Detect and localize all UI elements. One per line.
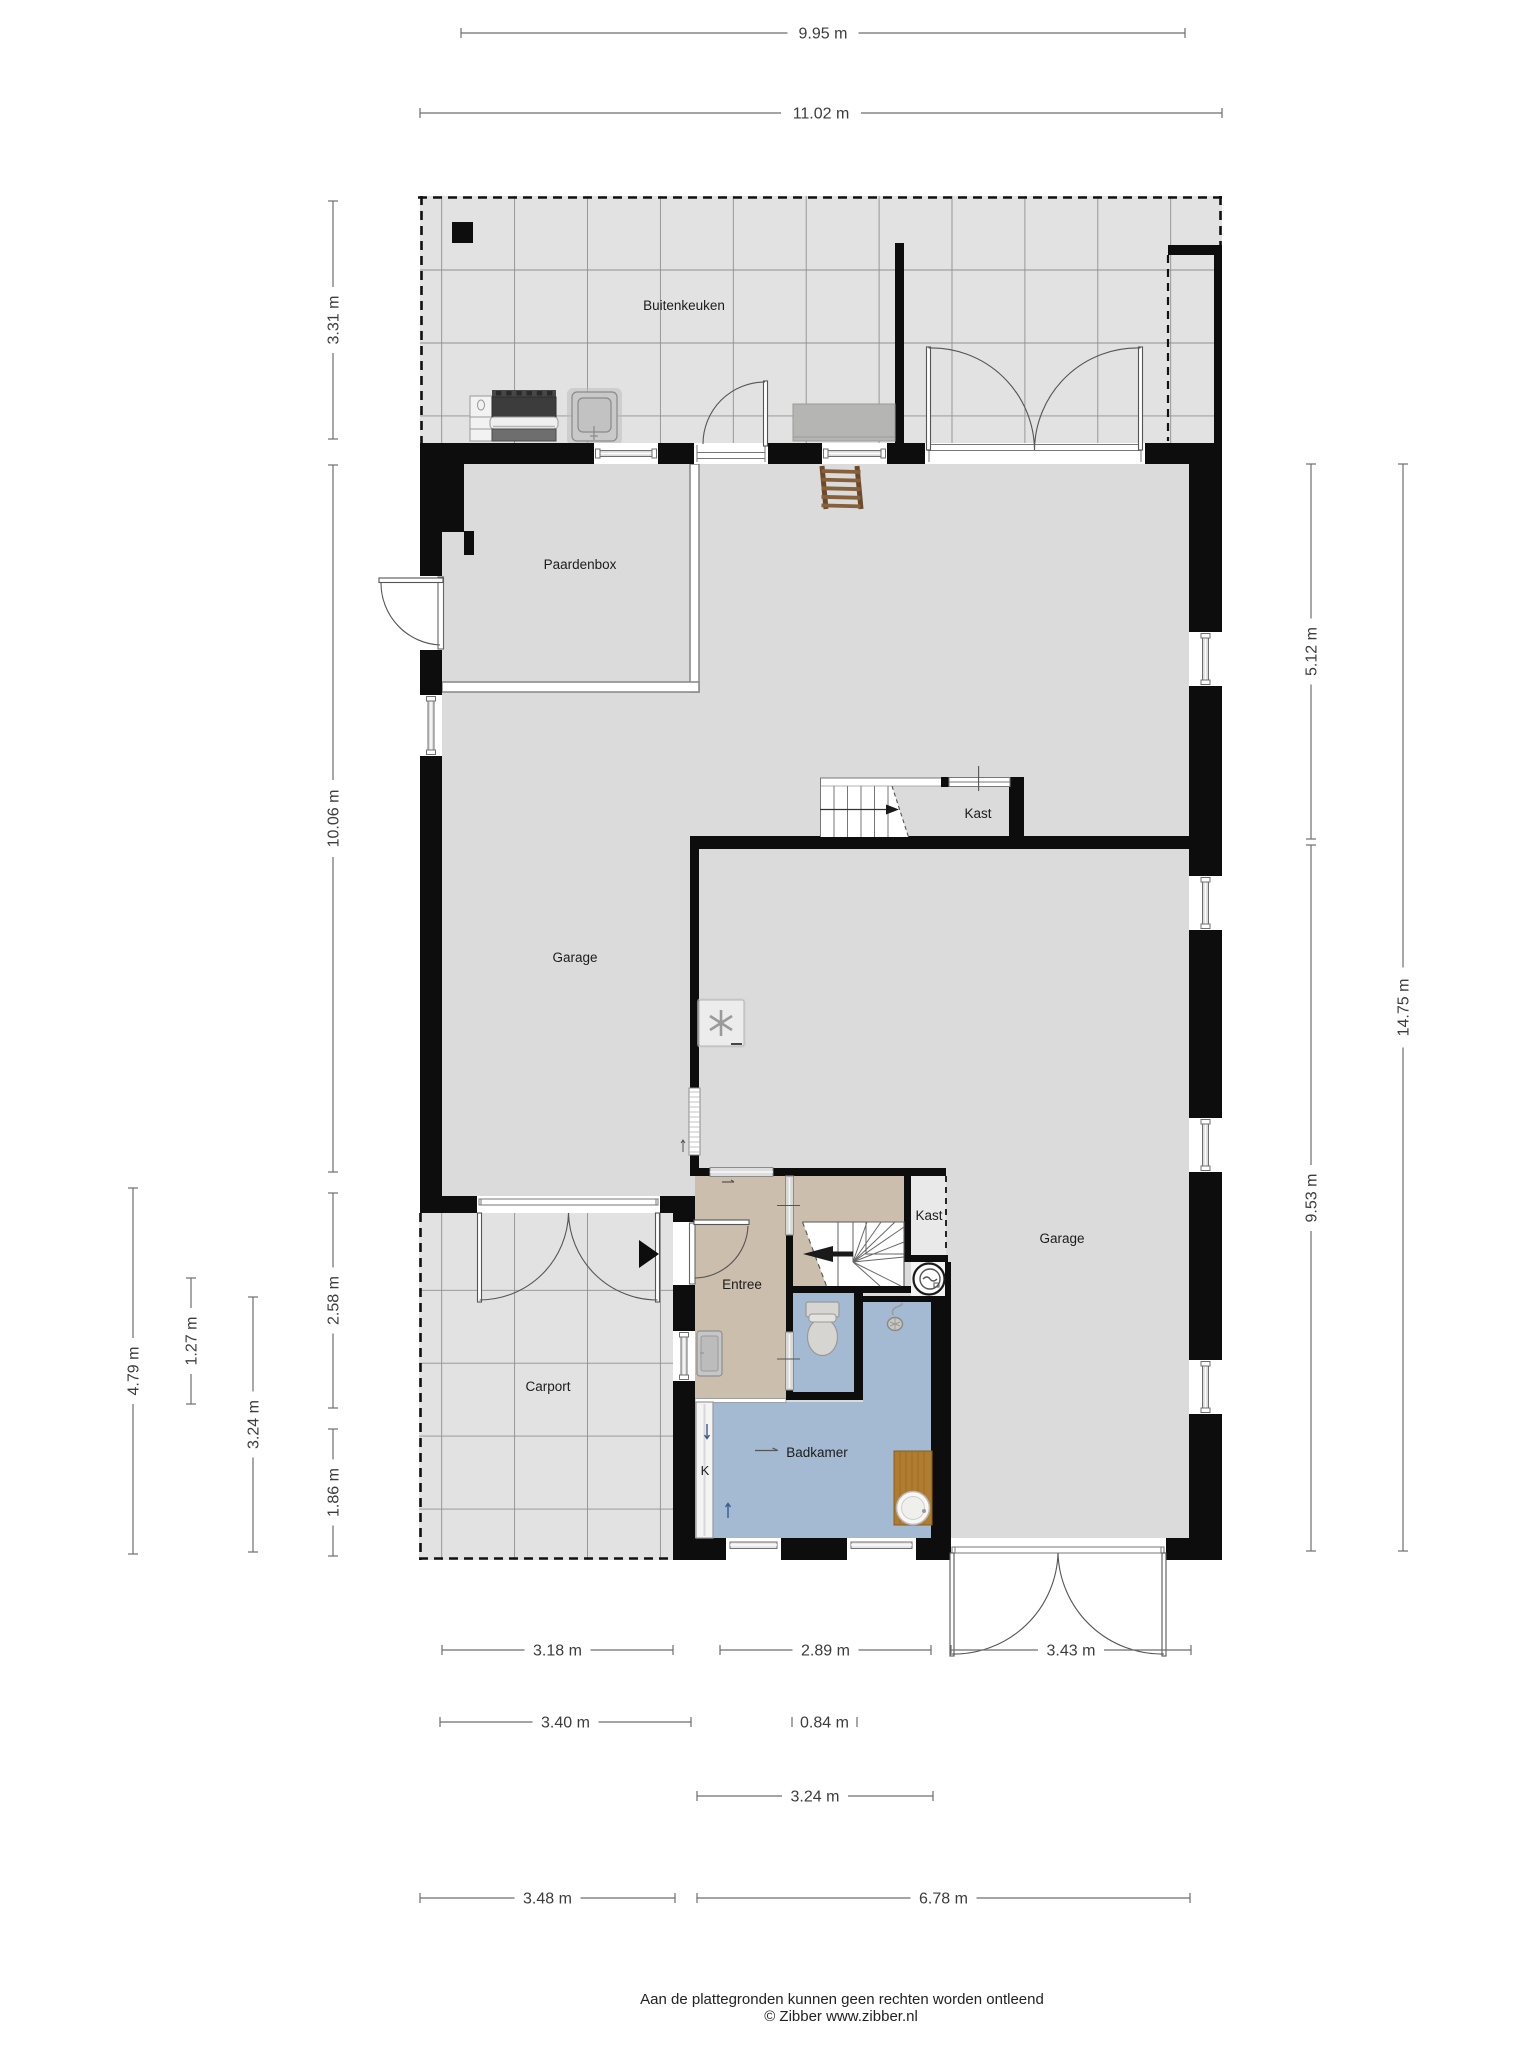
svg-text:5.12 m: 5.12 m [1304,627,1321,676]
svg-text:11.02 m: 11.02 m [793,106,850,123]
svg-text:3.43 m: 3.43 m [1047,1643,1096,1660]
svg-text:Garage: Garage [1039,1231,1084,1246]
svg-text:1.27 m: 1.27 m [184,1317,201,1366]
svg-text:K: K [701,1463,710,1478]
svg-text:Paardenbox: Paardenbox [544,557,617,572]
svg-text:Carport: Carport [525,1379,570,1394]
svg-text:2.89 m: 2.89 m [801,1643,850,1660]
svg-text:6.78 m: 6.78 m [919,1891,968,1908]
svg-text:Kast: Kast [915,1208,942,1223]
svg-text:3.48 m: 3.48 m [523,1891,572,1908]
svg-text:Entree: Entree [722,1277,762,1292]
svg-text:3.24 m: 3.24 m [246,1400,263,1449]
svg-text:Kast: Kast [964,806,991,821]
svg-text:Garage: Garage [552,950,597,965]
svg-text:Buitenkeuken: Buitenkeuken [643,298,725,313]
svg-text:© Zibber www.zibber.nl: © Zibber www.zibber.nl [764,2008,918,2025]
svg-text:3.40 m: 3.40 m [541,1715,590,1732]
svg-text:10.06 m: 10.06 m [326,790,343,848]
svg-text:9.95 m: 9.95 m [799,26,848,43]
svg-text:4.79 m: 4.79 m [126,1347,143,1396]
svg-text:14.75 m: 14.75 m [1396,979,1413,1037]
svg-text:1.86 m: 1.86 m [326,1468,343,1517]
svg-text:Badkamer: Badkamer [786,1445,848,1460]
svg-text:3.18 m: 3.18 m [533,1643,582,1660]
svg-text:3.24 m: 3.24 m [791,1789,840,1806]
svg-text:3.31 m: 3.31 m [326,296,343,345]
svg-text:Aan de plattegronden kunnen ge: Aan de plattegronden kunnen geen rechten… [640,1991,1044,2008]
svg-text:9.53 m: 9.53 m [1304,1174,1321,1223]
svg-text:2.58 m: 2.58 m [326,1276,343,1325]
svg-text:0.84 m: 0.84 m [800,1715,849,1732]
